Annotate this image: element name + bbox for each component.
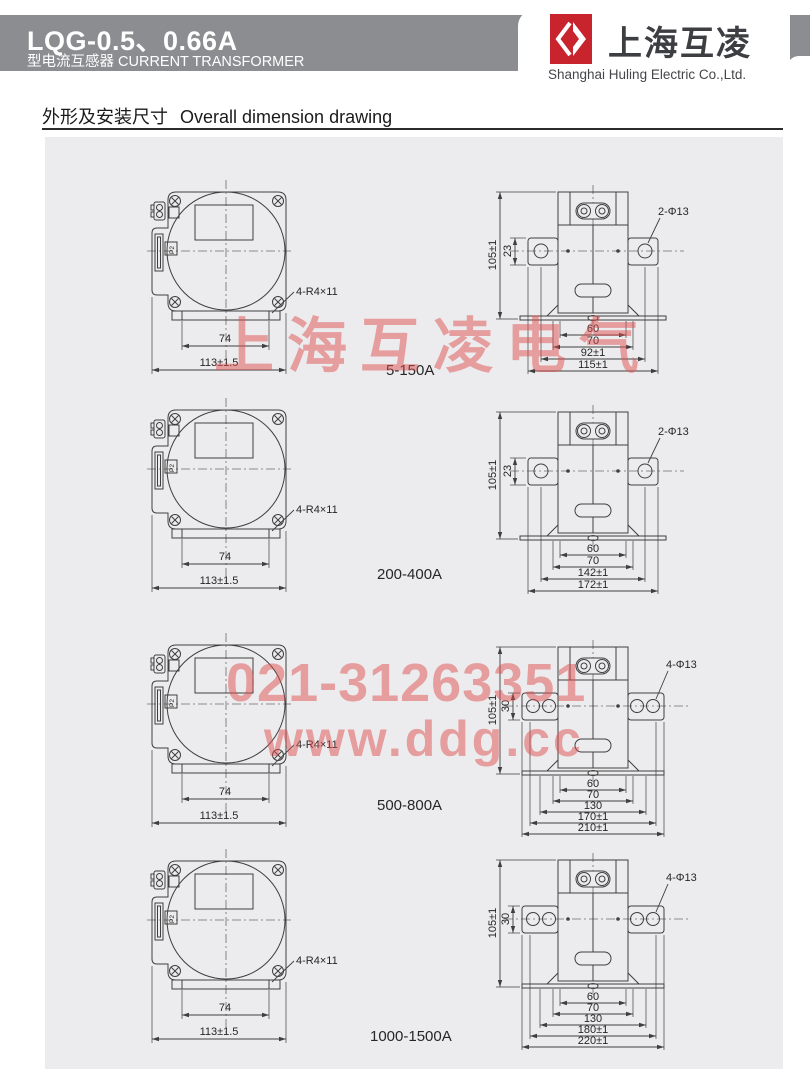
svg-text:30: 30 [500, 913, 512, 925]
mount-hole-note: 4-R4×11 [296, 955, 338, 967]
svg-text:70: 70 [587, 555, 599, 567]
dimension-label: 74 [219, 333, 231, 345]
leader-note: 4-R4×11 [272, 286, 338, 313]
p2-terminal-label: P2 [169, 246, 176, 254]
range-label-3: 500-800A [377, 797, 442, 814]
side-view-row4: 105±1 30 4-Φ13 60 70 130 180±1 220±1 [488, 853, 733, 1063]
body-outline [152, 192, 286, 320]
svg-text:220±1: 220±1 [578, 1035, 609, 1047]
brand-logo-icon [550, 14, 592, 64]
dim-wing: 30 [500, 693, 520, 720]
p2-terminal-label: P2 [169, 464, 176, 472]
svg-text:210±1: 210±1 [578, 822, 609, 834]
dimension-label: 92±1 [581, 347, 605, 359]
diamond-logo-icon [550, 14, 592, 64]
product-type-line: 型电流互感器 CURRENT TRANSFORMER [27, 50, 304, 71]
section-title-cn: 外形及安装尺寸 [42, 107, 168, 127]
terminal-screws [576, 871, 610, 887]
svg-text:30: 30 [500, 700, 512, 712]
section-title: 外形及安装尺寸Overall dimension drawing [42, 103, 392, 129]
front-view-row2: P2 74 113±1.5 4-R4×11 [145, 396, 355, 606]
svg-text:105±1: 105±1 [487, 460, 499, 491]
corner-screws [170, 649, 284, 761]
dimension-label: 23 [502, 245, 514, 257]
svg-text:60: 60 [587, 543, 599, 555]
dim-inner-width: 74 [182, 990, 269, 1019]
terminal-block [151, 202, 179, 220]
corner-screws [170, 865, 284, 977]
dimension-label: 105±1 [487, 240, 499, 271]
front-view-row3: P2 74 113±1.5 4-R4×11 [145, 631, 355, 841]
dimension-label: 113±1.5 [200, 357, 239, 369]
terminal-block [151, 655, 179, 673]
mount-hole-note: 4-R4×11 [296, 504, 338, 516]
front-view-row4: P2 74 113±1.5 4-R4×11 [145, 847, 355, 1057]
svg-text:113±1.5: 113±1.5 [200, 1026, 239, 1038]
range-label-1: 5-150A [386, 362, 434, 379]
hole-note: 2-Φ13 [658, 206, 689, 218]
side-view-row3: 105±1 30 4-Φ13 60 70 130 170±1 210±1 [488, 640, 733, 850]
body-outline [152, 861, 286, 989]
svg-text:74: 74 [219, 786, 231, 798]
svg-text:105±1: 105±1 [487, 908, 499, 939]
terminal-screws [576, 423, 610, 439]
mount-hole-note: 4-R4×11 [296, 286, 338, 298]
dim-height: 105±1 [487, 192, 556, 319]
terminal-block [151, 420, 179, 438]
corner-screws [170, 414, 284, 526]
leader-note: 4-R4×11 [272, 739, 338, 766]
brand-name-cn: 上海互凌 [608, 16, 752, 65]
company-name-en: Shanghai Huling Electric Co.,Ltd. [548, 67, 746, 82]
mount-hole-note: 4-R4×11 [296, 739, 338, 751]
leader-hole-note: 2-Φ13 [648, 206, 689, 243]
dim-wing: 23 [502, 238, 526, 265]
svg-text:113±1.5: 113±1.5 [200, 810, 239, 822]
svg-text:74: 74 [219, 551, 231, 563]
leader-hole-note: 2-Φ13 [648, 426, 689, 463]
terminal-block [151, 871, 179, 889]
dim-inner-width: 74 [182, 774, 269, 803]
hole-note: 2-Φ13 [658, 426, 689, 438]
body-outline [152, 410, 286, 538]
svg-text:23: 23 [502, 465, 514, 477]
banner-corner-cut [787, 56, 810, 72]
section-title-en: Overall dimension drawing [180, 107, 392, 127]
dimension-label: 60 [587, 323, 599, 335]
svg-text:105±1: 105±1 [487, 695, 499, 726]
dim-inner-width: 74 [182, 321, 269, 350]
terminal-screws [576, 203, 610, 219]
datasheet-page: LQG-0.5、0.66A 型电流互感器 CURRENT TRANSFORMER… [0, 0, 810, 1089]
p2-terminal-label: P2 [169, 699, 176, 707]
dim-wing: 30 [500, 906, 520, 933]
side-view-row1: 105±1 23 2-Φ13 60 70 92±1 115±1 [488, 185, 728, 385]
logo-box: 上海互凌 Shanghai Huling Electric Co.,Ltd. [518, 10, 790, 83]
dimension-label: 115±1 [578, 359, 608, 371]
p2-terminal-label: P2 [169, 915, 176, 923]
leader-note: 4-R4×11 [272, 504, 338, 531]
dim-height: 105±1 [487, 412, 556, 539]
front-view-row1: P2 74 113±1.5 4-R4×11 [145, 178, 355, 388]
hole-note: 4-Φ13 [666, 659, 697, 671]
hole-note: 4-Φ13 [666, 872, 697, 884]
dim-wing: 23 [502, 458, 526, 485]
side-view-row2: 105±1 23 2-Φ13 60 70 142±1 172±1 [488, 405, 728, 605]
body-outline [152, 645, 286, 773]
range-label-4: 1000-1500A [370, 1028, 452, 1045]
dimension-label: 70 [587, 335, 599, 347]
svg-text:74: 74 [219, 1002, 231, 1014]
svg-text:142±1: 142±1 [578, 567, 609, 579]
terminal-screws [576, 658, 610, 674]
corner-screws [170, 196, 284, 308]
section-underline [42, 128, 783, 130]
svg-text:172±1: 172±1 [578, 579, 609, 591]
range-label-2: 200-400A [377, 566, 442, 583]
leader-note: 4-R4×11 [272, 955, 338, 982]
dim-inner-width: 74 [182, 539, 269, 568]
svg-text:113±1.5: 113±1.5 [200, 575, 239, 587]
